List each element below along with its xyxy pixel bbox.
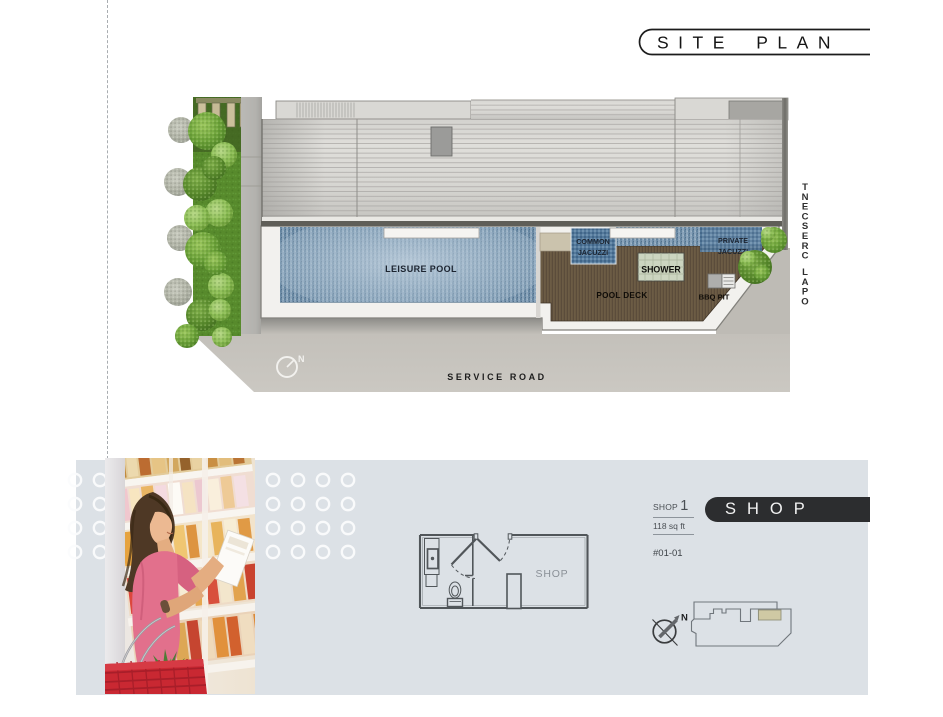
svg-text:C: C — [802, 251, 809, 262]
svg-text:N: N — [681, 613, 688, 624]
svg-text:SHOWER: SHOWER — [641, 265, 681, 275]
svg-text:BBQ PIT: BBQ PIT — [699, 293, 730, 302]
svg-text:SHOP: SHOP — [536, 568, 569, 580]
svg-text:N: N — [298, 354, 305, 364]
svg-text:POOL DECK: POOL DECK — [596, 291, 647, 300]
svg-text:PRIVATE: PRIVATE — [718, 236, 748, 245]
svg-text:JACUZZI: JACUZZI — [578, 248, 608, 257]
svg-text:O: O — [801, 296, 808, 307]
svg-text:LEISURE POOL: LEISURE POOL — [385, 264, 457, 274]
svg-text:COMMON: COMMON — [576, 237, 610, 246]
svg-text:SERVICE ROAD: SERVICE ROAD — [447, 372, 547, 382]
svg-text:SITE PLAN: SITE PLAN — [657, 33, 840, 53]
